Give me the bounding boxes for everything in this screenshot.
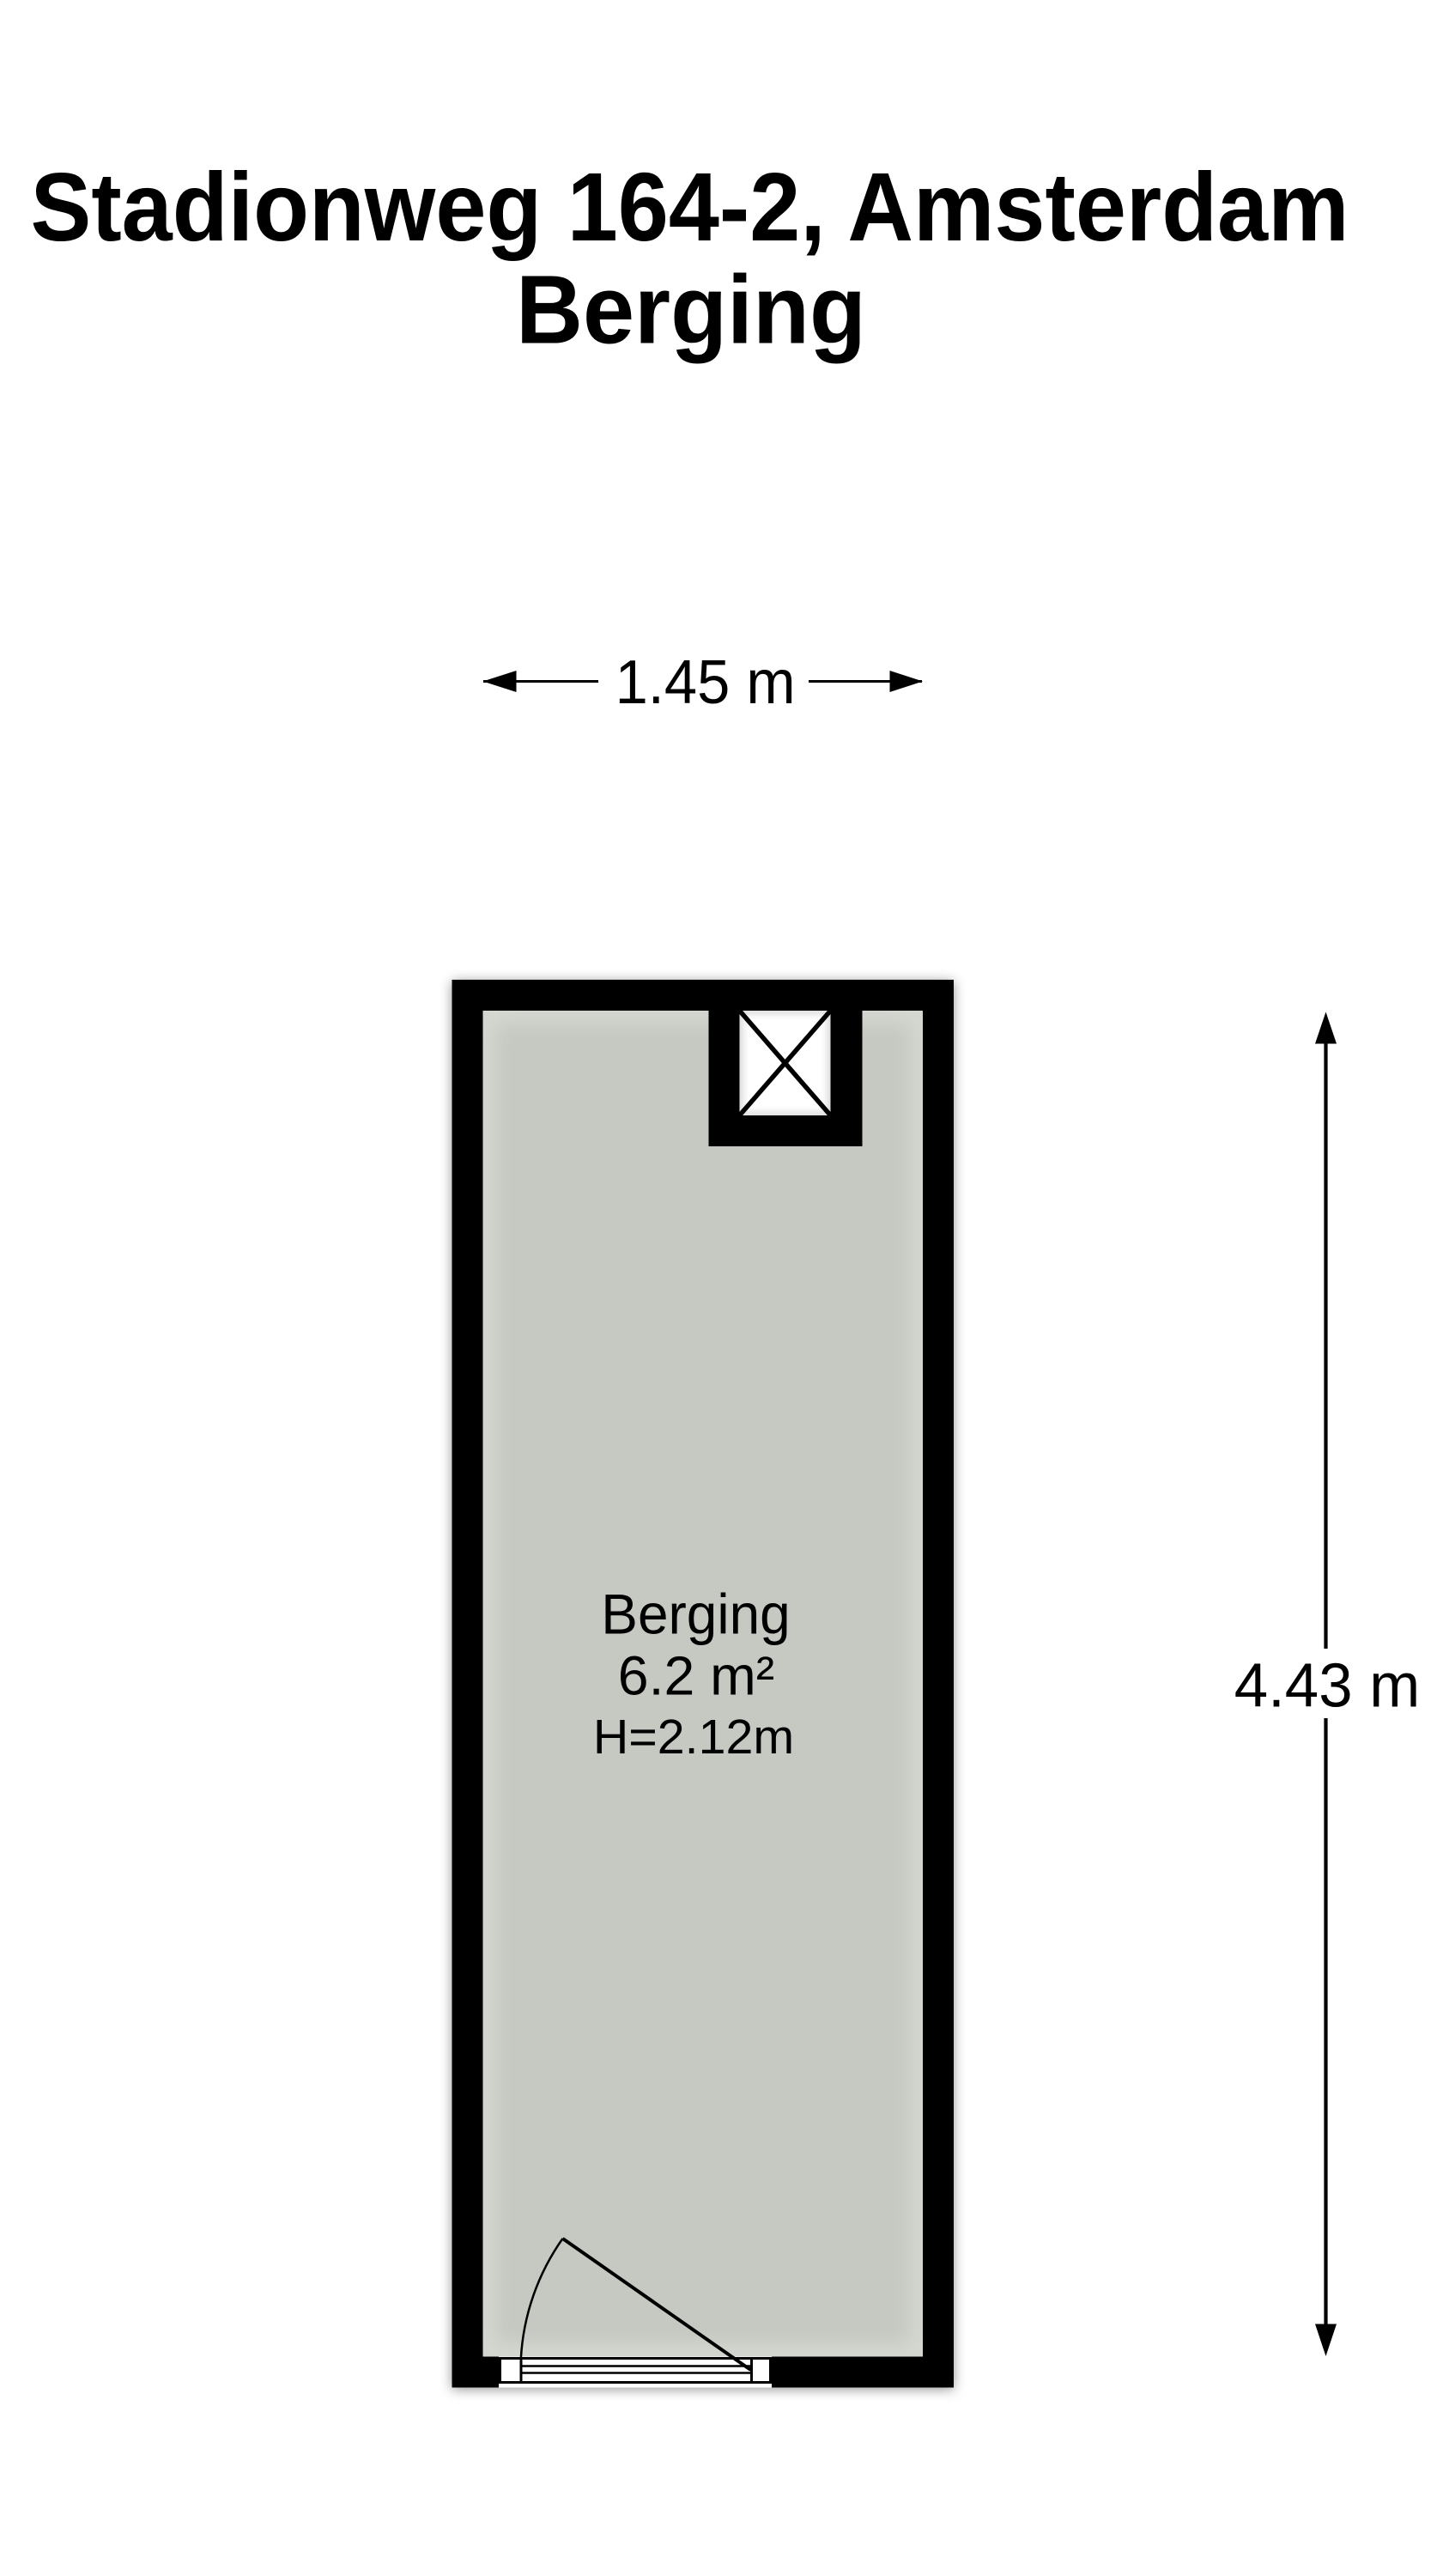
svg-text:Stadionweg 164-2, Amsterdam: Stadionweg 164-2, Amsterdam	[31, 153, 1349, 262]
svg-text:H=2.12m: H=2.12m	[593, 1710, 794, 1765]
svg-text:6.2 m²: 6.2 m²	[618, 1645, 774, 1707]
svg-text:1.45 m: 1.45 m	[615, 647, 796, 717]
svg-text:Berging: Berging	[516, 256, 866, 365]
svg-text:4.43 m: 4.43 m	[1234, 1651, 1421, 1721]
svg-text:Berging: Berging	[601, 1583, 790, 1646]
